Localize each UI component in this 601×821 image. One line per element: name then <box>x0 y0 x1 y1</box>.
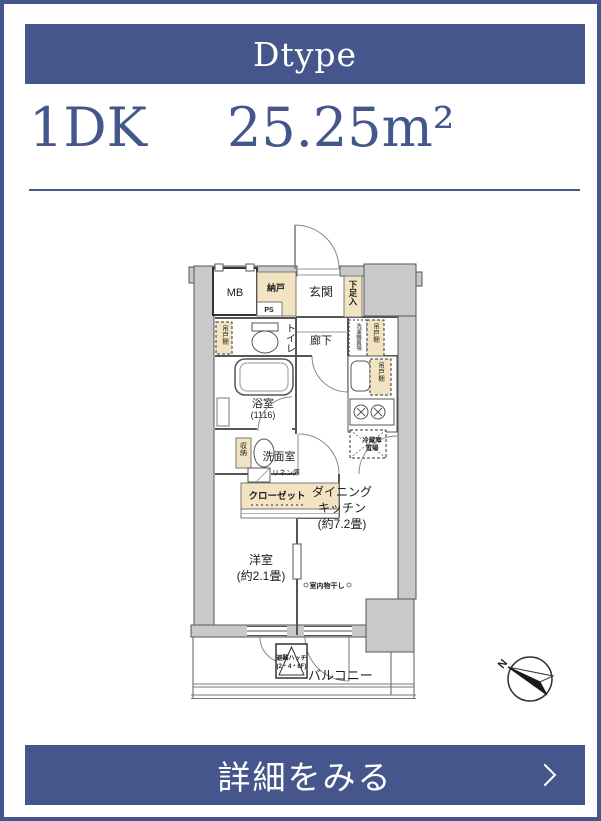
compass-north-label: N <box>496 657 510 671</box>
toilet-tank <box>252 323 278 331</box>
linen-box <box>248 468 270 482</box>
compass-icon: N <box>496 657 553 701</box>
details-button[interactable]: 詳細をみる <box>25 745 585 805</box>
drying-label: 室内物干し <box>310 581 345 590</box>
linen-label: リネン庫 <box>272 468 300 477</box>
bedroom-label-2: (約2.1畳) <box>237 568 286 583</box>
shoe-box-label: 下足入 <box>348 280 358 306</box>
floor-plan-card: Dtype 1DK 25.25m² <box>0 0 601 821</box>
hatch-label-2: (2・4・6F) <box>277 664 307 670</box>
washer-label: 洗濯機置場 <box>355 322 362 352</box>
bath-counter <box>217 398 229 426</box>
kitchen: 吊戸棚 <box>348 356 397 432</box>
dining-kitchen: ダイニング キッチン (約7.2畳) <box>312 484 372 531</box>
dk-label-1: ダイニング <box>312 484 372 499</box>
sink-icon <box>351 361 370 391</box>
washroom: 収納 洗面室 リネン庫 <box>236 434 339 482</box>
genkan-label: 玄関 <box>309 284 333 299</box>
details-button-label: 詳細をみる <box>218 751 393 799</box>
closet-label: クローゼット <box>248 490 305 502</box>
fridge-label-1: 冷蔵庫 <box>362 435 382 444</box>
chevron-right-icon <box>534 764 557 787</box>
storage-room: 納戸 PS <box>257 272 296 316</box>
bath-size-label: (1116) <box>251 410 276 420</box>
bath-label: 浴室 <box>252 396 274 410</box>
indoor-drying: 室内物干し <box>304 581 351 590</box>
washroom-door <box>298 434 339 474</box>
nando-label: 納戸 <box>267 282 285 293</box>
toilet-icon <box>252 331 278 353</box>
bathtub-icon <box>235 359 293 395</box>
balcony-label: バルコニー <box>308 668 373 683</box>
mb-label: MB <box>227 287 244 299</box>
hatch-label-1: 避難ハッチ <box>275 654 306 662</box>
bedroom-label-1: 洋室 <box>249 552 273 567</box>
washroom-storage-label: 収納 <box>240 442 248 457</box>
escape-hatch: 避難ハッチ (2・4・6F) <box>275 644 307 678</box>
corridor-door <box>312 356 348 392</box>
floor-plan: MB 納戸 PS 玄関 下足入 吊戸棚 トイレ <box>4 4 601 821</box>
floor-plan-svg: MB 納戸 PS 玄関 下足入 吊戸棚 トイレ <box>4 4 601 821</box>
entrance: 玄関 下足入 <box>295 225 362 332</box>
sliding-door-pocket <box>293 544 301 579</box>
ps-label: PS <box>264 307 274 314</box>
stove-icon <box>350 399 394 425</box>
washroom-label: 洗面室 <box>263 449 296 463</box>
fridge-space: 冷蔵庫 置場 <box>350 430 386 458</box>
dk-label-3: (約7.2畳) <box>318 516 367 531</box>
meter-box: MB <box>213 264 257 315</box>
toilet-room: 吊戸棚 トイレ <box>216 322 296 354</box>
bedroom: 洋室 (約2.1畳) <box>237 552 286 583</box>
toilet-label: トイレ <box>284 323 296 353</box>
corridor-label: 廊下 <box>310 333 332 347</box>
dk-label-2: キッチン <box>318 501 366 515</box>
washer-space: 洗濯機置場 吊戸棚 <box>349 320 384 356</box>
bathroom: 浴室 (1116) <box>217 359 293 431</box>
